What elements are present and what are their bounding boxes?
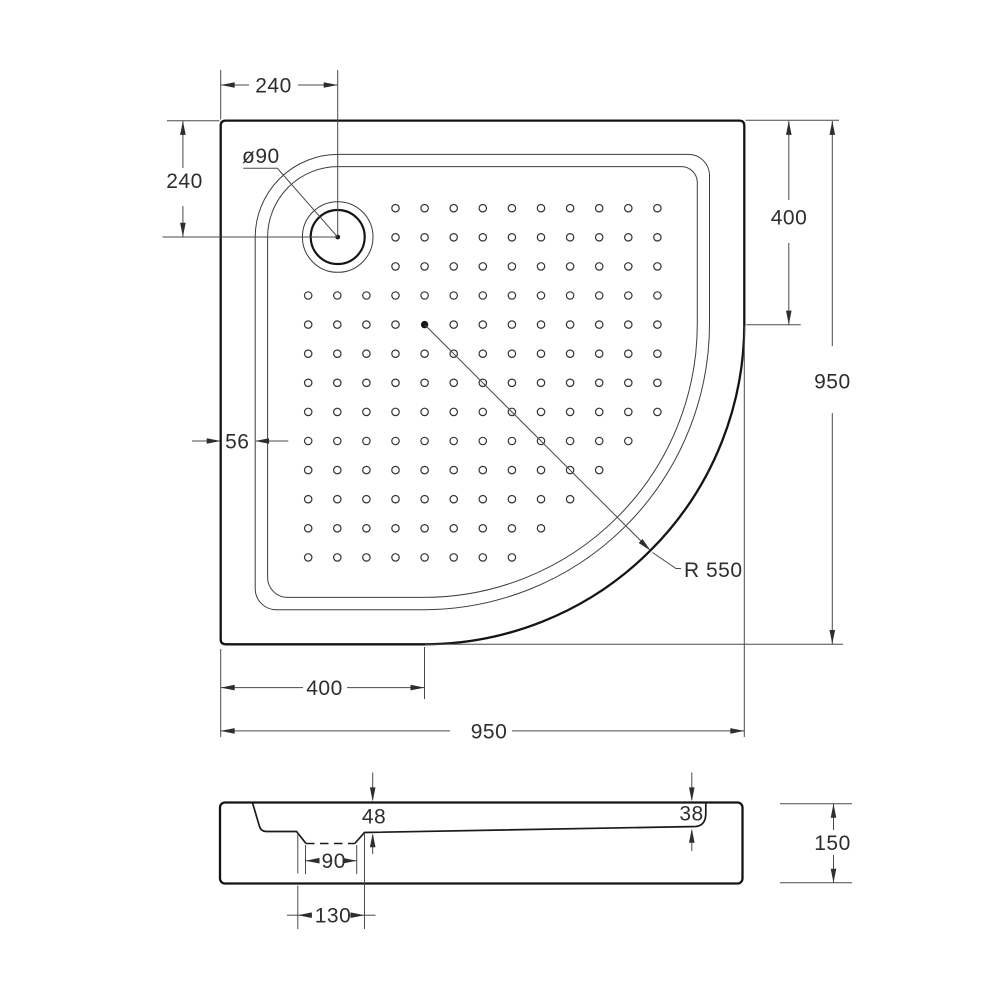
svg-text:130: 130 — [315, 905, 352, 928]
svg-text:R 550: R 550 — [684, 559, 743, 582]
svg-text:950: 950 — [814, 371, 851, 394]
svg-text:150: 150 — [814, 832, 851, 855]
svg-text:56: 56 — [225, 431, 249, 454]
svg-text:ø90: ø90 — [242, 145, 280, 168]
svg-text:240: 240 — [166, 170, 203, 193]
svg-text:240: 240 — [255, 75, 292, 98]
svg-text:950: 950 — [471, 720, 508, 743]
svg-text:400: 400 — [306, 677, 343, 700]
svg-text:48: 48 — [362, 806, 386, 829]
svg-text:38: 38 — [679, 803, 703, 826]
svg-text:400: 400 — [771, 207, 808, 230]
svg-text:90: 90 — [322, 850, 346, 873]
